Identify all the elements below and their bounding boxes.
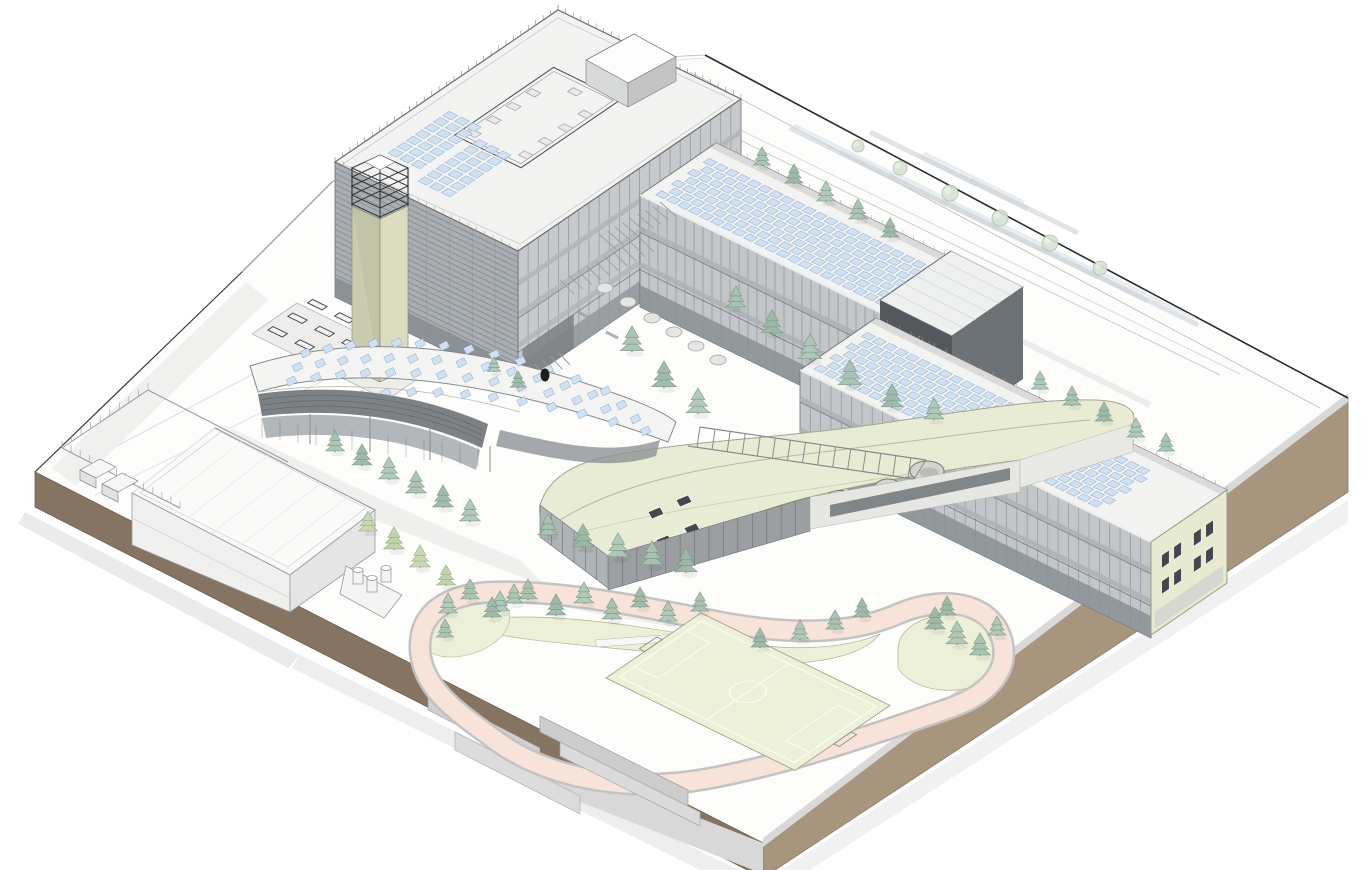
rendering-svg: Architectural axonometric site rendering…: [0, 0, 1370, 870]
round-tree: [1093, 261, 1107, 275]
site-axonometric-rendering: Architectural axonometric site rendering…: [0, 0, 1370, 870]
round-tree: [852, 140, 864, 152]
round-tree: [1042, 235, 1058, 251]
person-figure: [541, 369, 550, 382]
round-tree: [992, 210, 1008, 226]
round-tree: [942, 185, 958, 201]
round-tree: [893, 161, 907, 175]
